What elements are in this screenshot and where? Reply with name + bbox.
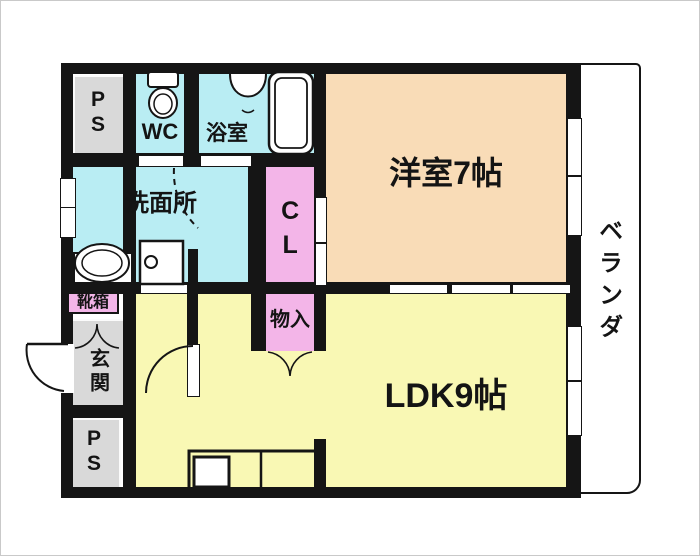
label-veranda: ベランダ [579, 209, 637, 354]
hall-door-swing-arc [146, 346, 193, 393]
label-ps-bottom: PS [70, 418, 117, 485]
washing-machine-icon [140, 241, 183, 284]
label-bath: 浴室 [191, 119, 263, 149]
entrance-door-swing-arc [27, 344, 64, 391]
label-wc: WC [136, 117, 184, 147]
label-entrance: 玄関 [71, 343, 123, 401]
kitchen-sink-icon [194, 457, 229, 487]
label-closet: CL [266, 193, 314, 269]
label-washroom: 洗面所 [101, 189, 221, 219]
storage-door-arcs [268, 352, 312, 376]
toilet-tank-icon [148, 72, 178, 87]
label-ps-top: PS [73, 75, 122, 151]
bath-drain-icon [242, 110, 254, 113]
floorplan-canvas: PS WC 浴室 洗面所 CL 洋室7帖 物入 靴箱 玄関 PS LDK9帖 ベ… [0, 0, 700, 556]
label-storage: 物入 [264, 306, 316, 334]
label-shoe-box: 靴箱 [67, 292, 119, 314]
label-ldk: LDK9帖 [326, 376, 566, 418]
bath-basin-icon [230, 74, 266, 97]
label-western-room: 洋室7帖 [326, 154, 566, 194]
